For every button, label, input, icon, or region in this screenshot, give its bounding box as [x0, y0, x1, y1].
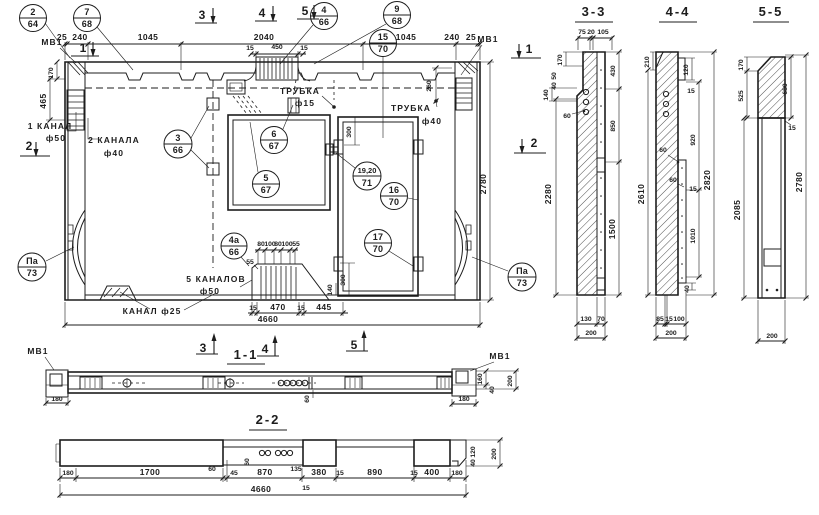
dim-label: 15: [410, 470, 418, 477]
callout-den: 73: [517, 278, 527, 288]
view-1-1: 1-1 180 180 160 40 200 60 МВ1 МВ1: [27, 346, 519, 407]
dim-label: 2085: [732, 200, 742, 221]
dim-label: 200: [491, 448, 498, 460]
marker-num: 2: [26, 139, 33, 153]
callout: 3 66: [164, 106, 209, 168]
marker-num: 5: [302, 4, 309, 18]
callout-num: 2: [30, 7, 35, 17]
dim-label: 55: [292, 241, 300, 248]
embed-pad: [597, 278, 605, 290]
section-marker: 1: [71, 41, 99, 57]
tube-label: ф15: [295, 98, 315, 108]
section-marker: 1: [511, 42, 541, 59]
dim-label: 100: [281, 241, 293, 248]
view-title: 2-2: [256, 412, 281, 427]
dim-label: 890: [367, 467, 382, 477]
section-marker: 3: [195, 8, 217, 24]
dim-label: 15: [249, 305, 257, 312]
dim-label: 60: [659, 147, 667, 154]
section-4-4: 4-4 210 2610 120 15 60 60 15 920 1010 40…: [636, 4, 717, 341]
dim-label: 180: [451, 470, 463, 477]
right-end-cut: [450, 440, 466, 466]
section-marker: 5: [297, 4, 319, 20]
marker-num: 3: [199, 8, 206, 22]
dim-label: 60: [304, 395, 311, 403]
dim-label: 135: [290, 466, 302, 473]
dim-label: 170: [557, 54, 564, 66]
dim-label: 240: [444, 32, 459, 42]
marker-num: 1: [80, 41, 87, 55]
dim-label: 170: [48, 67, 55, 79]
dim-label: 680: [782, 83, 789, 95]
dim-label: 260: [426, 80, 433, 92]
dim-label: 25: [466, 32, 476, 42]
dim-label: 15: [336, 470, 344, 477]
corner-anchor-hatch-right: [458, 62, 478, 74]
dim-label: 15: [788, 125, 796, 132]
callout-den: 67: [261, 185, 271, 195]
embed-block: [764, 249, 781, 266]
top-face-notches: [85, 73, 455, 80]
dim-label: 2780: [794, 172, 804, 193]
view-title: 4-4: [666, 4, 691, 19]
callout-num: 4а: [229, 235, 240, 245]
dim-label: 2820: [702, 170, 712, 191]
tube-label: ТРУБКА: [391, 103, 431, 113]
dim-label: 70: [597, 316, 605, 323]
dim-label: 400: [424, 467, 439, 477]
callout-num: 4: [321, 5, 326, 15]
dim-label: 1045: [138, 32, 159, 42]
callout-den: 66: [229, 247, 239, 257]
dim-label: 60: [669, 177, 677, 184]
view-title: 3-3: [582, 4, 607, 19]
section-marker: 4: [255, 6, 277, 22]
callout-den: 70: [373, 244, 383, 254]
section-marker: 5: [346, 330, 368, 352]
dim-label: 200: [585, 330, 597, 337]
callout-den: 64: [28, 19, 38, 29]
dim-label: 85: [656, 316, 664, 323]
callout-den: 68: [392, 16, 402, 26]
bottom-dot: [776, 289, 779, 292]
view-title: 1-1: [234, 347, 259, 362]
callout: 16 70: [381, 183, 419, 210]
callout-den: 66: [173, 145, 183, 155]
right-end-channel-block: [456, 78, 472, 110]
dim-label: 465: [38, 93, 48, 108]
dim-label: 15: [689, 186, 697, 193]
dim-label: 2280: [543, 184, 553, 205]
dim-label: 180: [51, 396, 63, 403]
callout-den: 71: [362, 178, 372, 188]
section-marker: 2: [514, 136, 546, 154]
channel-recess: [223, 440, 303, 466]
dim-label: 210: [644, 56, 651, 68]
channel-label: КАНАЛ ф25: [123, 306, 182, 316]
marker-num: 3: [200, 341, 207, 355]
marker-num: 4: [262, 342, 269, 356]
left-edge-bulge: [73, 210, 86, 285]
section-marker: 3: [196, 333, 218, 355]
section-3-3: 3-3 75 20 105 170 50 40 140 60 2280 430 …: [543, 4, 622, 341]
dim-label: 120: [683, 64, 690, 76]
dim-label: 200: [507, 375, 514, 387]
dim-label: 40: [489, 386, 496, 394]
dim-label: 445: [316, 302, 331, 312]
concrete-hatch: [577, 52, 597, 295]
dim-label: 170: [738, 59, 745, 71]
dim-label: 2780: [478, 174, 488, 195]
dim-label: 15: [302, 485, 310, 492]
view-title: 5-5: [759, 4, 784, 19]
right-opening: [334, 117, 423, 296]
opening-cut: [336, 440, 414, 447]
dim-label: 1500: [607, 219, 617, 240]
callout-num: 17: [373, 232, 383, 242]
dim-label-total: 4660: [251, 484, 272, 494]
channel-label: ф50: [46, 133, 66, 143]
embed-pad: [597, 158, 605, 172]
channel-label: 2 КАНАЛА: [88, 135, 140, 145]
dim-label: 430: [610, 65, 617, 77]
dim-label: 300: [340, 274, 347, 286]
callout-den: 68: [82, 19, 92, 29]
dim-label: 525: [738, 90, 745, 102]
channel-label: ф50: [200, 286, 220, 296]
marker-num: 4: [259, 6, 266, 20]
main-elevation-view: [65, 57, 480, 300]
callout-num: 6: [271, 129, 276, 139]
callout: 17 70: [365, 230, 414, 267]
hidden-diagonals: [233, 96, 262, 114]
anchor-label: МВ1: [27, 346, 48, 356]
lifting-recess: [244, 57, 310, 81]
dim-label: 180: [458, 396, 470, 403]
callout: 4 66: [280, 3, 338, 65]
channel-label: ф40: [104, 148, 124, 158]
dim-label: 380: [311, 467, 326, 477]
finish-layer-dots: [600, 69, 602, 269]
dim-label: 200: [766, 333, 778, 340]
concrete-hatch: [656, 52, 678, 295]
marker-num: 2: [531, 136, 538, 150]
dim-label: 45: [230, 470, 238, 477]
dim-label: 40: [470, 459, 477, 467]
dim-label: 40: [684, 285, 691, 293]
channel-label: 1 КАНАЛ: [28, 121, 72, 131]
dim-label: 60: [563, 113, 571, 120]
view-2-2: 2-2 180 1700 60 45 870 135 15 380 15 890…: [56, 412, 503, 498]
dim-label: 850: [610, 120, 617, 132]
dim-label: 20: [587, 29, 595, 36]
callout-den: 70: [389, 197, 399, 207]
blueprint-sheet: 25 240 1045 2040 1045 240 25 15 450 15 1…: [0, 0, 819, 515]
section-marker: 4: [257, 335, 279, 356]
dim-label: 60: [208, 466, 216, 473]
dim-label: 60: [244, 458, 251, 466]
callout-num: 5: [263, 173, 268, 183]
callout: Па 73: [472, 257, 536, 291]
dim-label: 15: [300, 45, 308, 52]
dim-label-total: 4660: [258, 314, 279, 324]
embed-plate-top: [227, 80, 245, 94]
dim-label: 140: [543, 89, 550, 101]
dim-label: 180: [62, 470, 74, 477]
callout-num: Па: [26, 256, 39, 266]
bottom-dot: [766, 289, 769, 292]
dim-label: 120: [470, 446, 477, 458]
right-end-detail: [452, 369, 476, 396]
anchor-label: МВ1: [489, 351, 510, 361]
dim-label: 130: [580, 316, 592, 323]
callout-num: 9: [394, 4, 399, 14]
dim-label: 55: [246, 259, 254, 266]
dim-label: 300: [346, 126, 353, 138]
dim-label: 450: [271, 44, 283, 51]
callout-num: Па: [516, 266, 529, 276]
callout-den: 67: [269, 141, 279, 151]
embed-plates: [80, 377, 452, 389]
callout-den: 70: [378, 44, 388, 54]
dim-label: 2610: [636, 184, 646, 205]
marker-num: 1: [526, 42, 533, 56]
dim-label: 75: [578, 29, 586, 36]
drawing-canvas: 25 240 1045 2040 1045 240 25 15 450 15 1…: [0, 0, 819, 515]
tube-label: ТРУБКА: [280, 86, 320, 96]
dim-label: 920: [690, 134, 697, 146]
anchor-label: МВ1: [477, 34, 498, 44]
callout-num: 19,20: [358, 166, 377, 175]
callout-den: 73: [27, 268, 37, 278]
left-end-detail: [46, 370, 68, 397]
finish-layer-dots: [681, 167, 683, 279]
callout-num: 3: [175, 133, 180, 143]
dim-label: 105: [597, 29, 609, 36]
dim-label: 200: [665, 330, 677, 337]
dim-label: 140: [327, 284, 334, 296]
dim-label: 470: [270, 302, 285, 312]
dim-label: 15: [687, 88, 695, 95]
dim-label: 1045: [396, 32, 417, 42]
callout: 4а 66: [221, 233, 249, 266]
tube-label: ф40: [422, 116, 442, 126]
tube-ends: [112, 377, 316, 389]
callout-den: 66: [319, 17, 329, 27]
marker-num: 5: [351, 338, 358, 352]
dim-label: 1700: [140, 467, 161, 477]
left-opening: [228, 115, 330, 210]
dim-label: 2040: [254, 32, 275, 42]
dim-label: 870: [257, 467, 272, 477]
channel-label: 5 КАНАЛОВ: [186, 274, 245, 284]
callout-num: 7: [84, 7, 89, 17]
dim-label: 15: [665, 316, 673, 323]
dim-label: 50: [551, 72, 558, 80]
callout-num: 15: [378, 32, 388, 42]
dim-label: 160: [477, 373, 484, 385]
dim-label: 15: [297, 305, 305, 312]
dim-label: 100: [673, 316, 685, 323]
dim-label: 15: [246, 45, 254, 52]
callout-num: 16: [389, 185, 399, 195]
anchor-label: МВ1: [41, 37, 62, 47]
section-5-5: 5-5 170 525 2085 680 15 2780 200: [732, 4, 809, 344]
dim-label: 1010: [690, 228, 697, 243]
